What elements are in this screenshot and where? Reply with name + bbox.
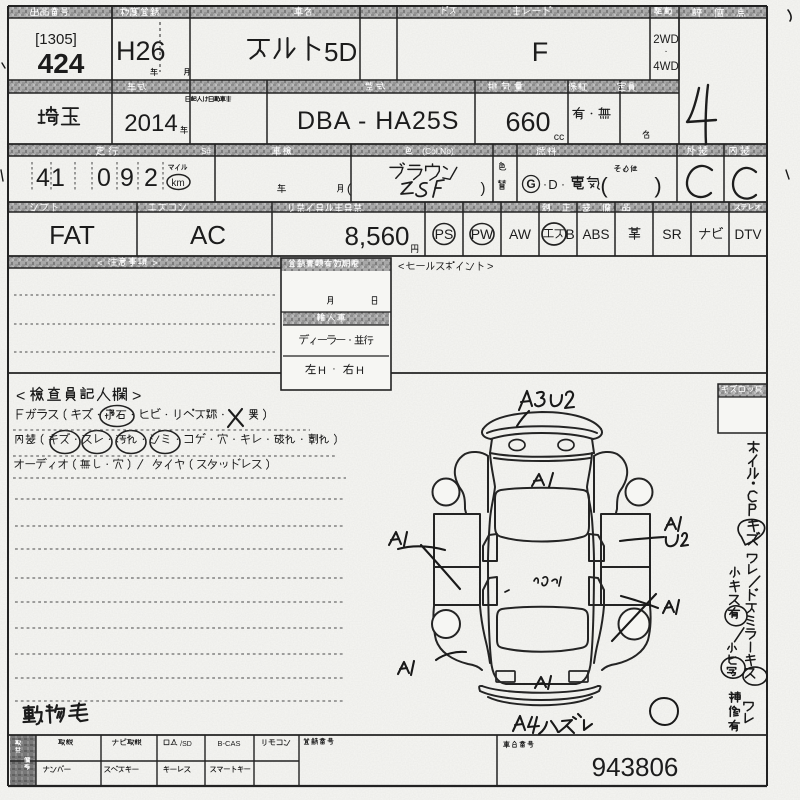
svg-text:H26: H26	[116, 36, 166, 66]
svg-text:DBA - HA25S: DBA - HA25S	[297, 107, 459, 135]
svg-text:·: ·	[332, 363, 336, 375]
svg-text:943806: 943806	[592, 752, 679, 782]
svg-text:AW: AW	[509, 226, 532, 242]
svg-text:(Col.No): (Col.No)	[422, 146, 454, 156]
svg-text:424: 424	[38, 48, 85, 79]
svg-text:>: >	[152, 258, 157, 268]
svg-text:F: F	[532, 37, 549, 67]
svg-text:km: km	[171, 178, 184, 189]
svg-text:0: 0	[97, 164, 111, 192]
svg-text:<: <	[16, 388, 25, 405]
svg-text:[1305]: [1305]	[35, 31, 77, 48]
svg-text:cc: cc	[554, 131, 565, 143]
svg-text:): )	[654, 173, 661, 198]
svg-text:H: H	[356, 365, 364, 377]
svg-text:(: (	[347, 181, 352, 196]
svg-text:>: >	[487, 261, 493, 273]
svg-text:>: >	[132, 388, 141, 405]
svg-text:4: 4	[36, 164, 50, 192]
svg-text:·: ·	[664, 46, 667, 57]
svg-text:·: ·	[543, 177, 547, 191]
svg-text:PS: PS	[435, 226, 454, 242]
svg-text:660: 660	[505, 107, 550, 137]
svg-text:B-CAS: B-CAS	[218, 739, 241, 748]
svg-text:8,560: 8,560	[344, 221, 409, 251]
svg-text:2: 2	[144, 164, 158, 192]
svg-text:<: <	[97, 258, 102, 268]
svg-text:DTV: DTV	[735, 227, 762, 242]
svg-text:SR: SR	[662, 226, 681, 242]
svg-text:PW: PW	[471, 226, 494, 242]
svg-text:9: 9	[120, 164, 134, 192]
svg-text:G: G	[526, 177, 535, 191]
svg-text:2WD: 2WD	[653, 34, 679, 46]
svg-text:4WD: 4WD	[653, 61, 679, 73]
svg-text:·: ·	[561, 177, 565, 191]
svg-text:FAT: FAT	[49, 220, 95, 250]
svg-text:ABS: ABS	[582, 227, 609, 242]
svg-text:2014: 2014	[124, 110, 177, 137]
svg-text:<: <	[398, 261, 404, 273]
svg-text:D: D	[548, 177, 557, 192]
svg-text:AC: AC	[190, 220, 226, 250]
svg-text:1: 1	[51, 164, 65, 192]
svg-text:): )	[481, 180, 486, 197]
svg-text:H: H	[318, 365, 326, 377]
svg-text:/SD: /SD	[180, 741, 192, 748]
svg-text:(: (	[600, 173, 608, 198]
svg-text:5D: 5D	[324, 37, 357, 67]
svg-text:S#: S#	[201, 147, 211, 156]
